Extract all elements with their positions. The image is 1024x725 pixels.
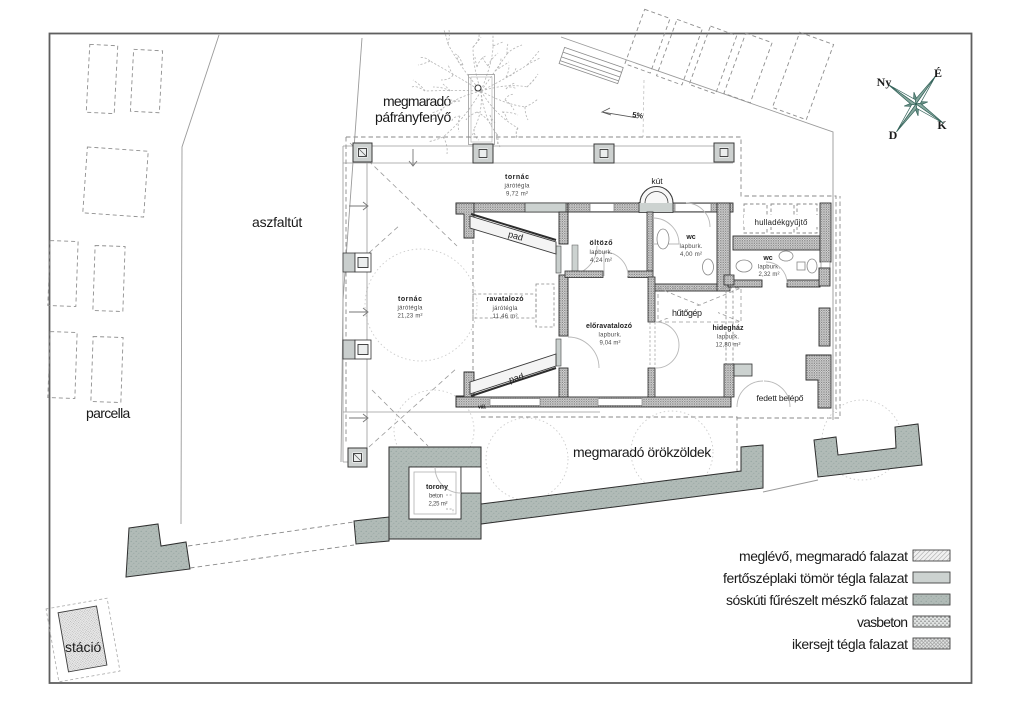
svg-text:lapburk.: lapburk. [680,244,703,250]
svg-text:tornác: tornác [398,296,422,303]
svg-text:hidegház: hidegház [713,325,745,332]
svg-text:wc: wc [762,255,772,262]
svg-text:vál.: vál. [478,405,487,411]
svg-text:fedett belépő: fedett belépő [757,393,804,403]
svg-text:előravatalozó: előravatalozó [586,323,632,330]
svg-text:páfrányfenyő: páfrányfenyő [375,109,452,125]
svg-text:járótégla: járótégla [504,184,531,190]
svg-text:12,80 m²: 12,80 m² [716,343,741,349]
svg-text:Ny: Ny [877,75,892,89]
svg-text:9,04 m²: 9,04 m² [600,341,621,347]
svg-text:kút: kút [651,176,663,186]
svg-text:É: É [934,66,942,80]
svg-text:járótégla: járótégla [492,306,519,312]
svg-text:járótégla: járótégla [397,306,424,312]
svg-text:öltöző: öltöző [590,240,613,247]
svg-text:parcella: parcella [86,405,131,421]
svg-text:5%: 5% [632,110,644,120]
svg-text:meglévő, megmaradó falazat: meglévő, megmaradó falazat [739,548,908,564]
svg-text:11,46 m²: 11,46 m² [493,314,518,320]
svg-text:wc: wc [685,234,695,241]
svg-text:tornác: tornác [505,174,529,181]
svg-text:beton: beton [429,494,443,500]
svg-text:megmaradó: megmaradó [383,93,452,109]
svg-text:vasbeton: vasbeton [857,614,908,630]
svg-text:K: K [937,118,947,132]
svg-text:sóskúti fűrészelt mészkő falaz: sóskúti fűrészelt mészkő falazat [726,592,908,608]
svg-text:hulladékgyűjtő: hulladékgyűjtő [755,218,809,227]
svg-text:ravatalozó: ravatalozó [487,296,524,303]
svg-text:9,72 m²: 9,72 m² [506,192,528,198]
svg-text:megmaradó örökzöldek: megmaradó örökzöldek [573,444,712,460]
svg-text:4,00 m²: 4,00 m² [680,252,702,258]
svg-text:stáció: stáció [65,639,102,655]
svg-text:D: D [889,128,898,142]
svg-text:lapburk.: lapburk. [590,250,613,256]
svg-text:lapburk.: lapburk. [717,335,739,341]
svg-text:fertőszéplaki tömör tégla fala: fertőszéplaki tömör tégla falazat [723,570,908,586]
svg-text:2,25 m²: 2,25 m² [429,502,448,508]
svg-text:aszfaltút: aszfaltút [252,214,302,230]
svg-text:torony: torony [426,484,448,491]
svg-text:21,23 m²: 21,23 m² [398,314,423,320]
svg-text:4,24 m²: 4,24 m² [590,258,612,264]
svg-text:2,32 m²: 2,32 m² [759,272,780,278]
svg-text:ikersejt tégla falazat: ikersejt tégla falazat [792,636,908,652]
svg-text:hűtőgép: hűtőgép [672,308,702,318]
svg-text:lapburk.: lapburk. [599,333,622,339]
